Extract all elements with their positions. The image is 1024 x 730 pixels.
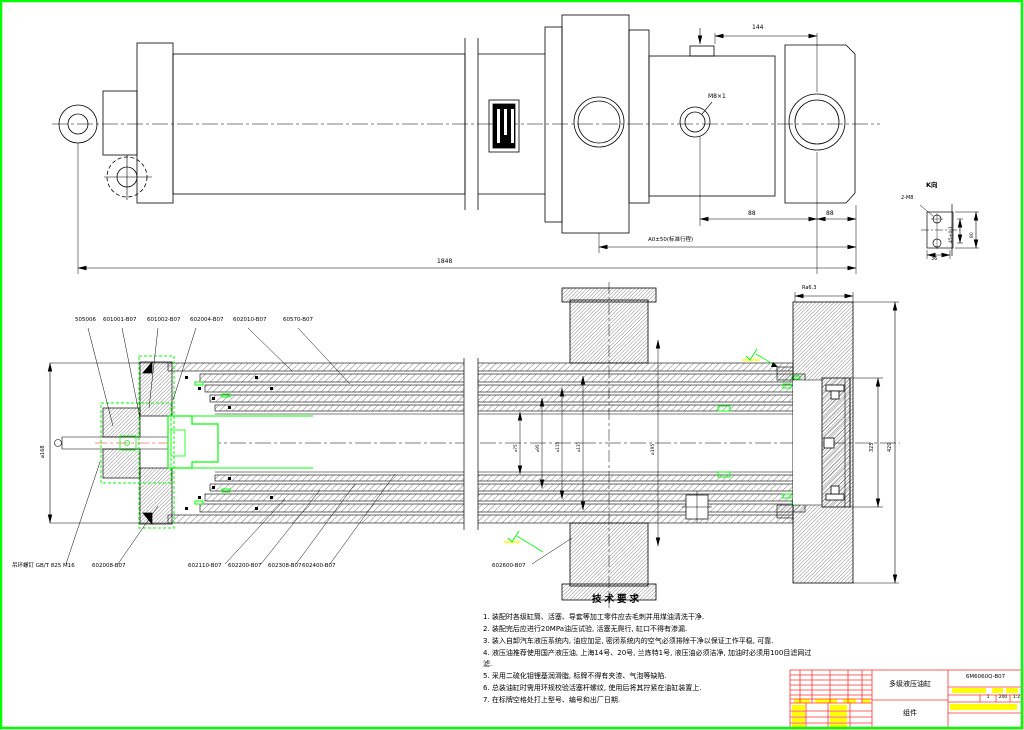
part-label: 602400-B07	[302, 564, 336, 570]
tech-requirement-item: 6. 总装油缸时需用环规校验活塞杆螺纹, 使用后将其拧紧在油缸装置上.	[483, 683, 815, 694]
dim-left-od: ⌀168	[41, 445, 46, 458]
part-label: 602010-B07	[233, 318, 267, 324]
detail-k-dim-v: 45±0.1	[950, 226, 955, 243]
titleblock-stage: 1	[981, 696, 995, 701]
titleblock-mass: 200	[997, 696, 1009, 701]
dim-stage-4: ⌀135	[577, 442, 581, 452]
part-label: 602600-B07	[492, 564, 526, 570]
tech-requirements-list: 1. 装配时各级缸筒、活塞、导套等加工零件应去毛刺并用煤油清洗干净. 2. 装配…	[483, 612, 815, 707]
part-label: 吊环螺钉 GB/T 825 M16	[12, 564, 75, 570]
part-label: 602308-B07	[268, 564, 302, 570]
tech-requirement-item: 5. 采用二硫化钼锂基润滑脂, 标牌不得有夹渣、气泡等缺陷.	[483, 671, 815, 682]
section-view	[50, 282, 900, 608]
dim-stage-2: ⌀95	[536, 445, 540, 453]
part-label: 601002-B07	[147, 318, 181, 324]
dim-flange-outer: 420	[888, 442, 893, 452]
tech-requirement-item: 3. 装入自卸汽车液压系统内, 油应加足, 密闭系统内的空气必须排除干净以保证工…	[483, 636, 815, 647]
titleblock-drawing-no: 6M6060Q-B07	[948, 675, 1023, 681]
dim-flange-inner: 325	[870, 442, 875, 452]
tech-requirements-title: 技术要求	[592, 595, 642, 605]
tech-requirement-item: 1. 装配时各级缸筒、活塞、导套等加工零件应去毛刺并用煤油清洗干净.	[483, 612, 815, 623]
dim-thread-callout: M8×1	[708, 94, 726, 100]
dim-stage-1: ⌀75	[514, 445, 518, 453]
part-label: 602110-B07	[188, 564, 222, 570]
detail-k-dim-r: 80	[971, 232, 976, 238]
dim-88a: 88	[748, 211, 756, 217]
surface-note: Ra6.3	[802, 286, 816, 291]
piston-plug-highlight	[120, 416, 313, 468]
rod-end-circle	[789, 94, 845, 150]
boss-circle	[680, 107, 710, 137]
dim-144: 144	[752, 25, 763, 31]
tech-requirement-item: 7. 在标牌空格处打上型号、编号和出厂日期.	[483, 695, 815, 706]
part-label: 601001-B07	[103, 318, 137, 324]
titleblock-product-name: 多级液压油缸	[872, 681, 948, 688]
part-label: 60570-B07	[283, 318, 313, 324]
tech-requirement-item: 4. 液压油推荐使用国产液压油, 上海14号、20号, 兰炼特1号, 液压油必须…	[483, 648, 815, 670]
top-view	[52, 15, 880, 274]
detail-k-holes: 2-M8	[901, 196, 913, 201]
flange-port-circle	[574, 97, 624, 147]
part-label: 602200-B07	[228, 564, 262, 570]
dim-88b: 88	[826, 211, 834, 217]
rod-end-block	[785, 45, 855, 203]
title-block-highlights	[792, 688, 1018, 728]
part-label: 505006	[75, 318, 96, 324]
tech-requirement-item: 2. 装配完后应进行20MPa油压试验, 活塞无爬行, 缸口不得有渗漏.	[483, 624, 815, 635]
top-tab	[690, 46, 714, 56]
right-flange	[777, 302, 853, 583]
part-label: 602008-B07	[92, 564, 126, 570]
cad-drawing-canvas: M8×1 144 88 88 A0±50(标准行程) 1848 K向 2-M8 …	[0, 0, 1024, 730]
titleblock-scale: 1:2	[1011, 696, 1022, 701]
part-label: 602004-B07	[190, 318, 224, 324]
dim-overall: 1848	[437, 259, 452, 265]
detail-k-dim-b: 36	[931, 257, 937, 262]
detail-k-title: K向	[926, 182, 938, 189]
oil-port	[682, 491, 712, 523]
dim-pilot: ⌀195	[652, 444, 657, 455]
titleblock-part-name: 组件	[872, 710, 948, 717]
dim-stage-3: ⌀115	[556, 442, 560, 452]
dim-stroke: A0±50(标准行程)	[648, 238, 693, 244]
